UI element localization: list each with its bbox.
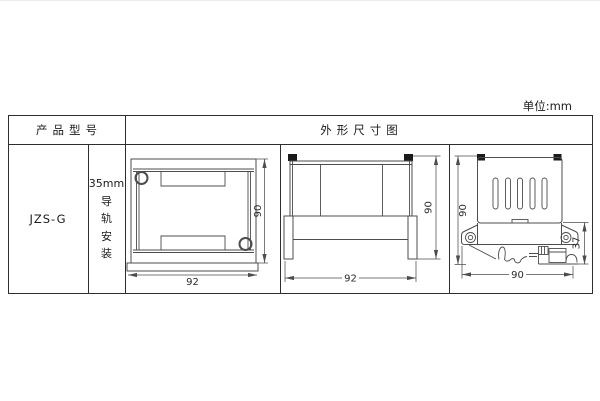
drawing-side-view: 90 37 90 xyxy=(449,144,593,294)
dim-label-sideview-height: 90 xyxy=(458,204,469,217)
vent-slot xyxy=(493,178,498,209)
mounting-char: 装 xyxy=(101,245,112,263)
vent-slot xyxy=(518,178,523,209)
vent-slot xyxy=(506,178,511,209)
drawing-front-view: 92 90 xyxy=(280,144,449,294)
dim-label-frontview-height: 90 xyxy=(424,201,435,214)
dimension-sheet: 单位:mm 产品型号 外形尺寸图 JZS-G 35mm 导 轨 安 装 xyxy=(0,0,600,401)
mounting-size-label: 35mm xyxy=(89,175,124,193)
drawing-top-view: 92 90 xyxy=(125,144,280,294)
mounting-cell: 35mm 导 轨 安 装 xyxy=(88,144,125,294)
vent-slot xyxy=(530,178,535,209)
dim-label-topview-height: 90 xyxy=(253,205,264,218)
product-model-cell: JZS-G xyxy=(8,144,88,294)
mount-lug xyxy=(288,154,297,161)
rail-clip xyxy=(469,245,496,259)
mounting-char: 轨 xyxy=(101,210,112,228)
unit-label: 单位:mm xyxy=(520,98,572,114)
header-cell-dimension-diagram: 外形尺寸图 xyxy=(125,115,593,144)
mounting-char: 安 xyxy=(101,228,112,246)
dim-label-frontview-width: 92 xyxy=(344,274,357,285)
dim-label-sideview-clip-depth: 37 xyxy=(572,237,583,250)
mounting-char: 导 xyxy=(101,193,112,211)
header-cell-product-model: 产品型号 xyxy=(8,115,125,144)
mount-lug xyxy=(404,154,413,161)
dim-label-topview-width: 92 xyxy=(186,277,199,288)
vent-slot xyxy=(542,178,547,209)
dim-label-sideview-width: 90 xyxy=(511,270,524,281)
